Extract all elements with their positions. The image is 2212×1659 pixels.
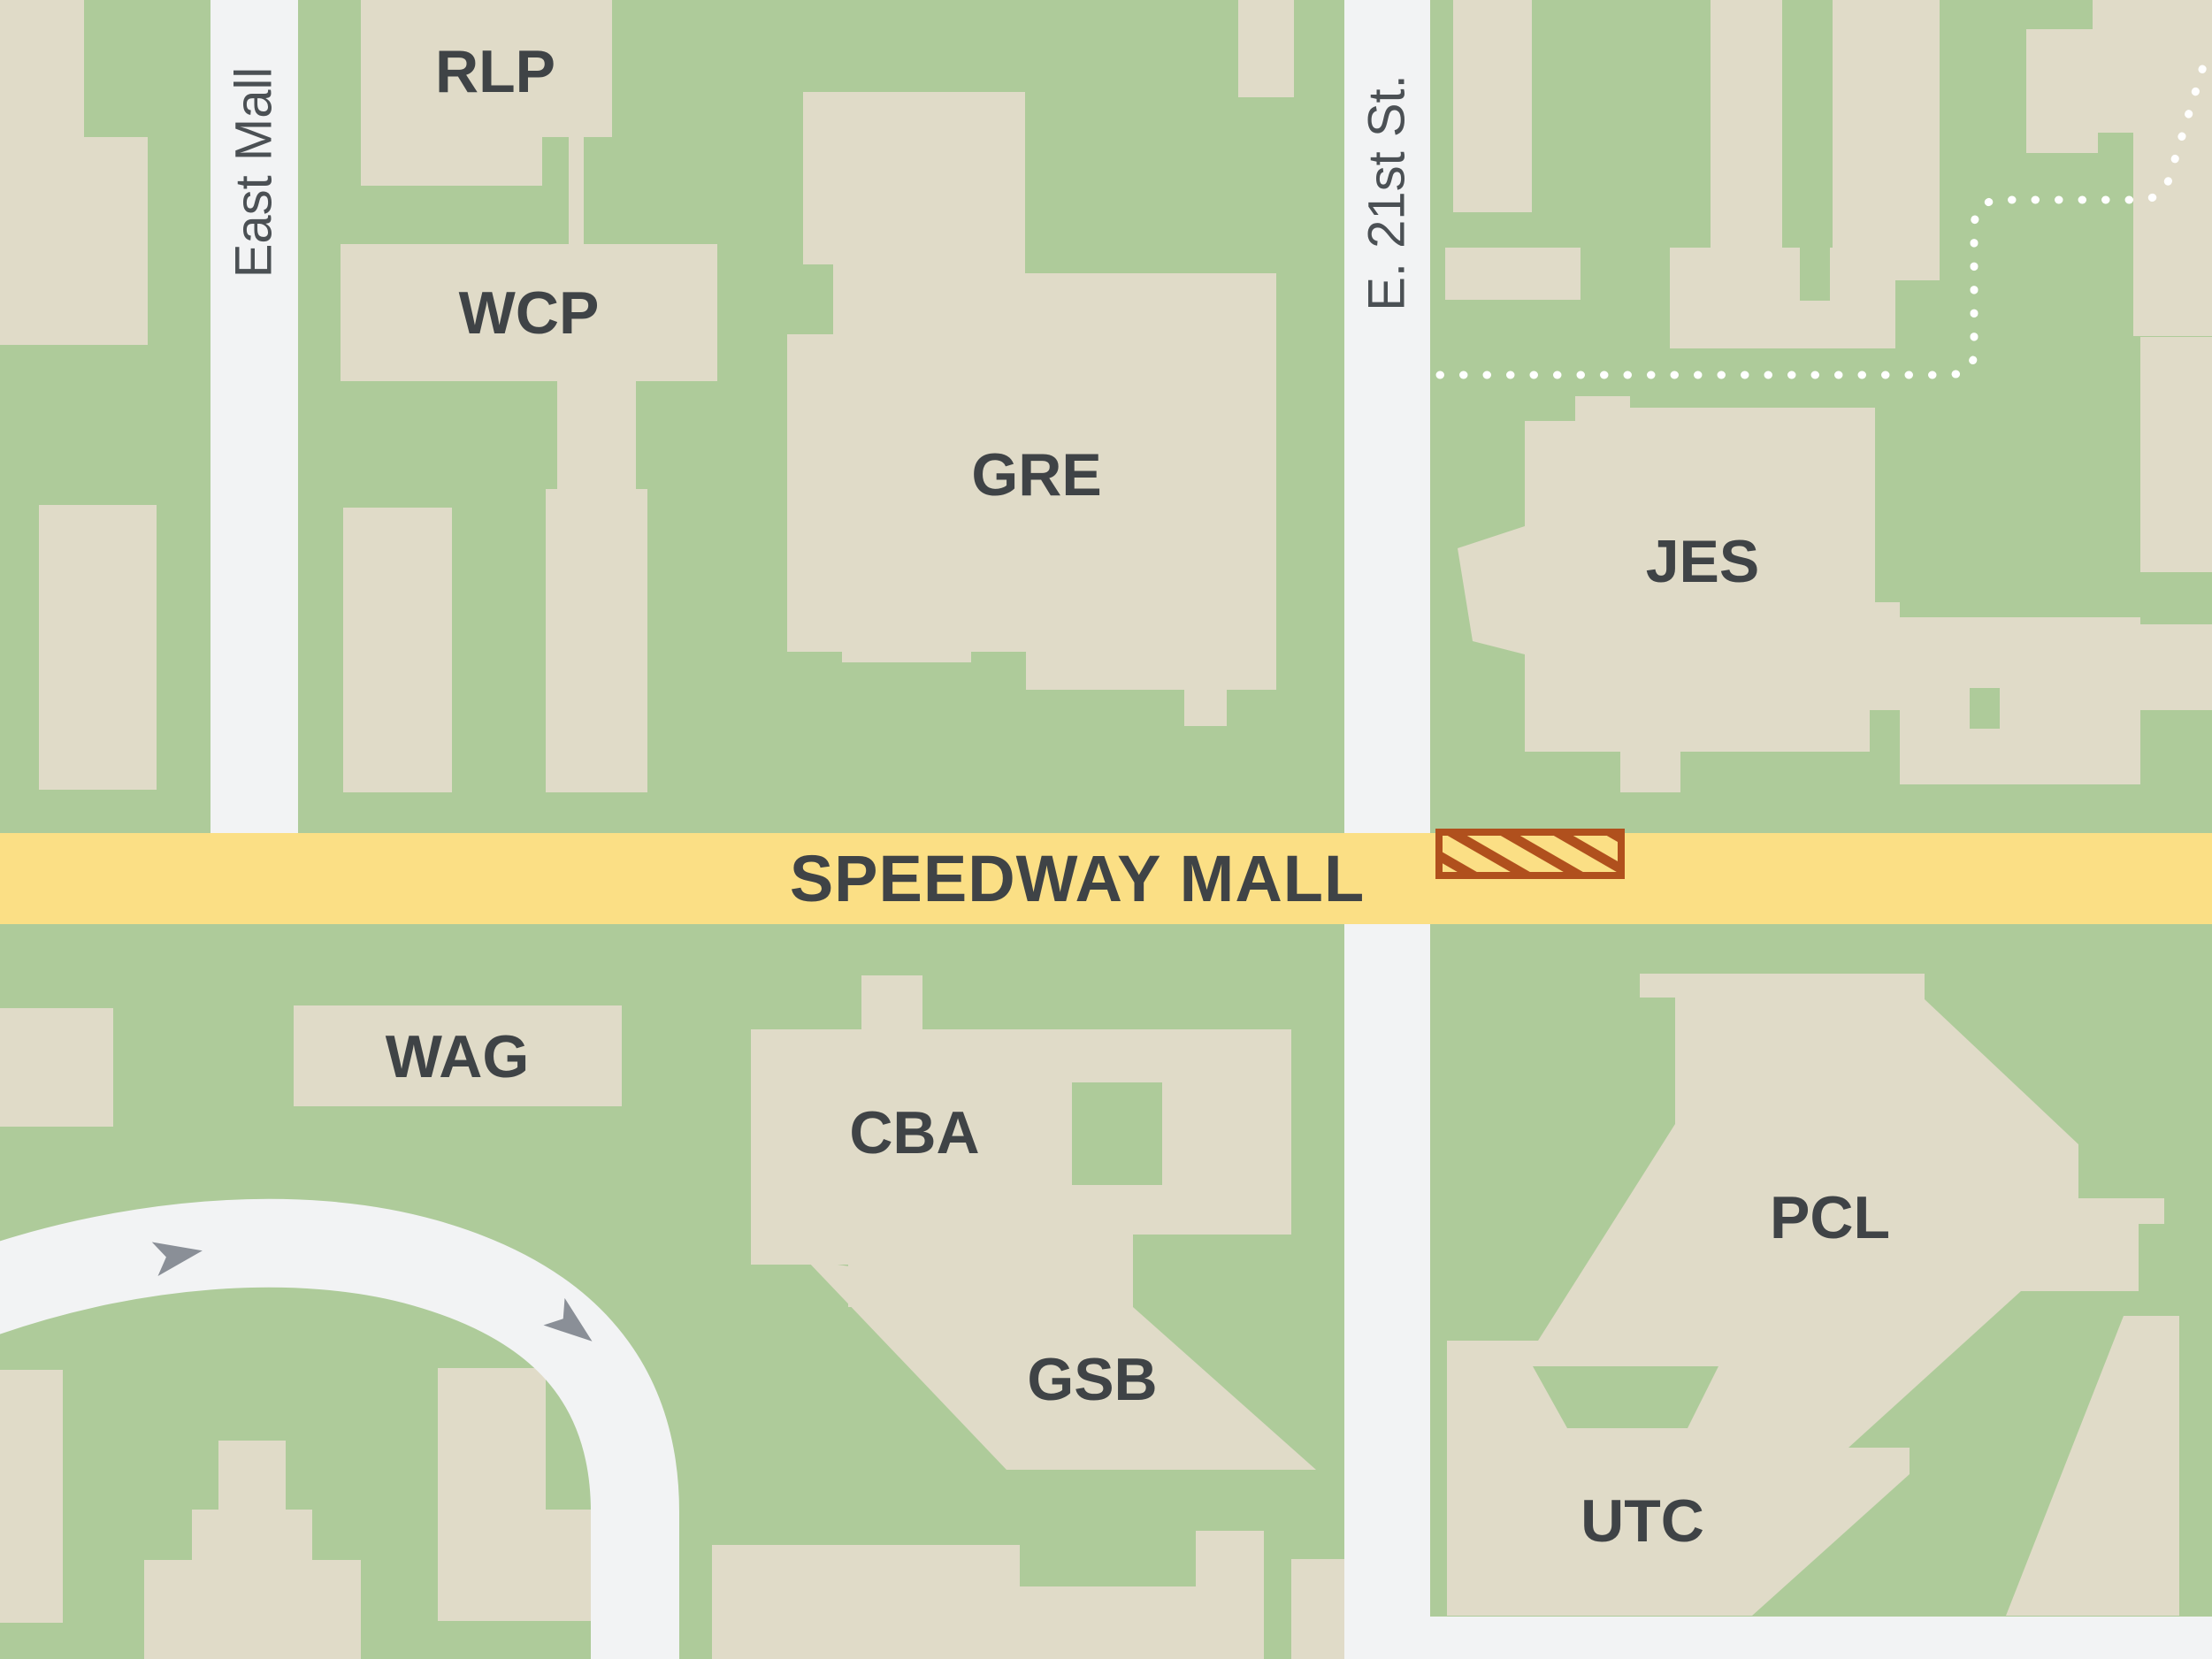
building-sw-ziggurat-mid <box>192 1510 312 1560</box>
bottom-road <box>1430 1617 2212 1659</box>
building-south-4 <box>1196 1531 1264 1659</box>
construction-zone-marker <box>1439 832 1621 875</box>
street-label-speedway-mall: SPEEDWAY MALL <box>790 842 1365 915</box>
cba-courtyard <box>1072 1082 1162 1185</box>
building-sw-ziggurat-base <box>144 1560 361 1659</box>
building-ne-col-1 <box>1453 0 1532 212</box>
campus-map-canvas: East Mall E. 21st St. SPEEDWAY MALL RLP … <box>0 0 2212 1659</box>
building-south-1 <box>712 1545 821 1659</box>
building-south-5 <box>1291 1559 1344 1659</box>
building-east-edge-1 <box>2140 337 2212 572</box>
building-label-cba: CBA <box>849 1099 979 1166</box>
building-rlp-wcp-connector <box>569 137 584 248</box>
building-west-of-e21st <box>1238 0 1294 97</box>
building-label-wag: WAG <box>386 1023 529 1090</box>
building-label-utc: UTC <box>1581 1487 1704 1555</box>
building-ne-col-3 <box>1833 0 1940 280</box>
building-ne-bar-2 <box>1670 248 1895 348</box>
building-label-gre: GRE <box>971 441 1101 508</box>
street-label-east-mall: East Mall <box>226 67 283 279</box>
campus-map: East Mall E. 21st St. SPEEDWAY MALL RLP … <box>0 0 2212 1659</box>
street-label-e21st: E. 21st St. <box>1359 74 1416 311</box>
building-label-gsb: GSB <box>1027 1346 1157 1413</box>
building-sw-1 <box>0 1008 113 1127</box>
building-west-of-wcp-tower <box>343 508 452 792</box>
building-ne-col-4 <box>2026 29 2098 153</box>
building-wcp-stem <box>557 381 636 493</box>
building-label-pcl: PCL <box>1770 1184 1890 1251</box>
building-sw-ziggurat-top <box>218 1441 286 1510</box>
building-wcp-tower <box>546 489 647 792</box>
building-label-wcp: WCP <box>459 279 600 347</box>
building-ne-bar-1 <box>1445 248 1581 300</box>
notch-east-of-jes <box>1970 688 2000 729</box>
building-label-jes: JES <box>1646 528 1760 595</box>
building-east-of-jes <box>1900 617 2140 784</box>
notch-ne-bar <box>1800 248 1830 301</box>
building-south-3 <box>947 1586 1196 1659</box>
building-label-rlp: RLP <box>435 38 555 105</box>
building-left-mid <box>39 505 157 790</box>
building-sw-2 <box>0 1370 63 1623</box>
